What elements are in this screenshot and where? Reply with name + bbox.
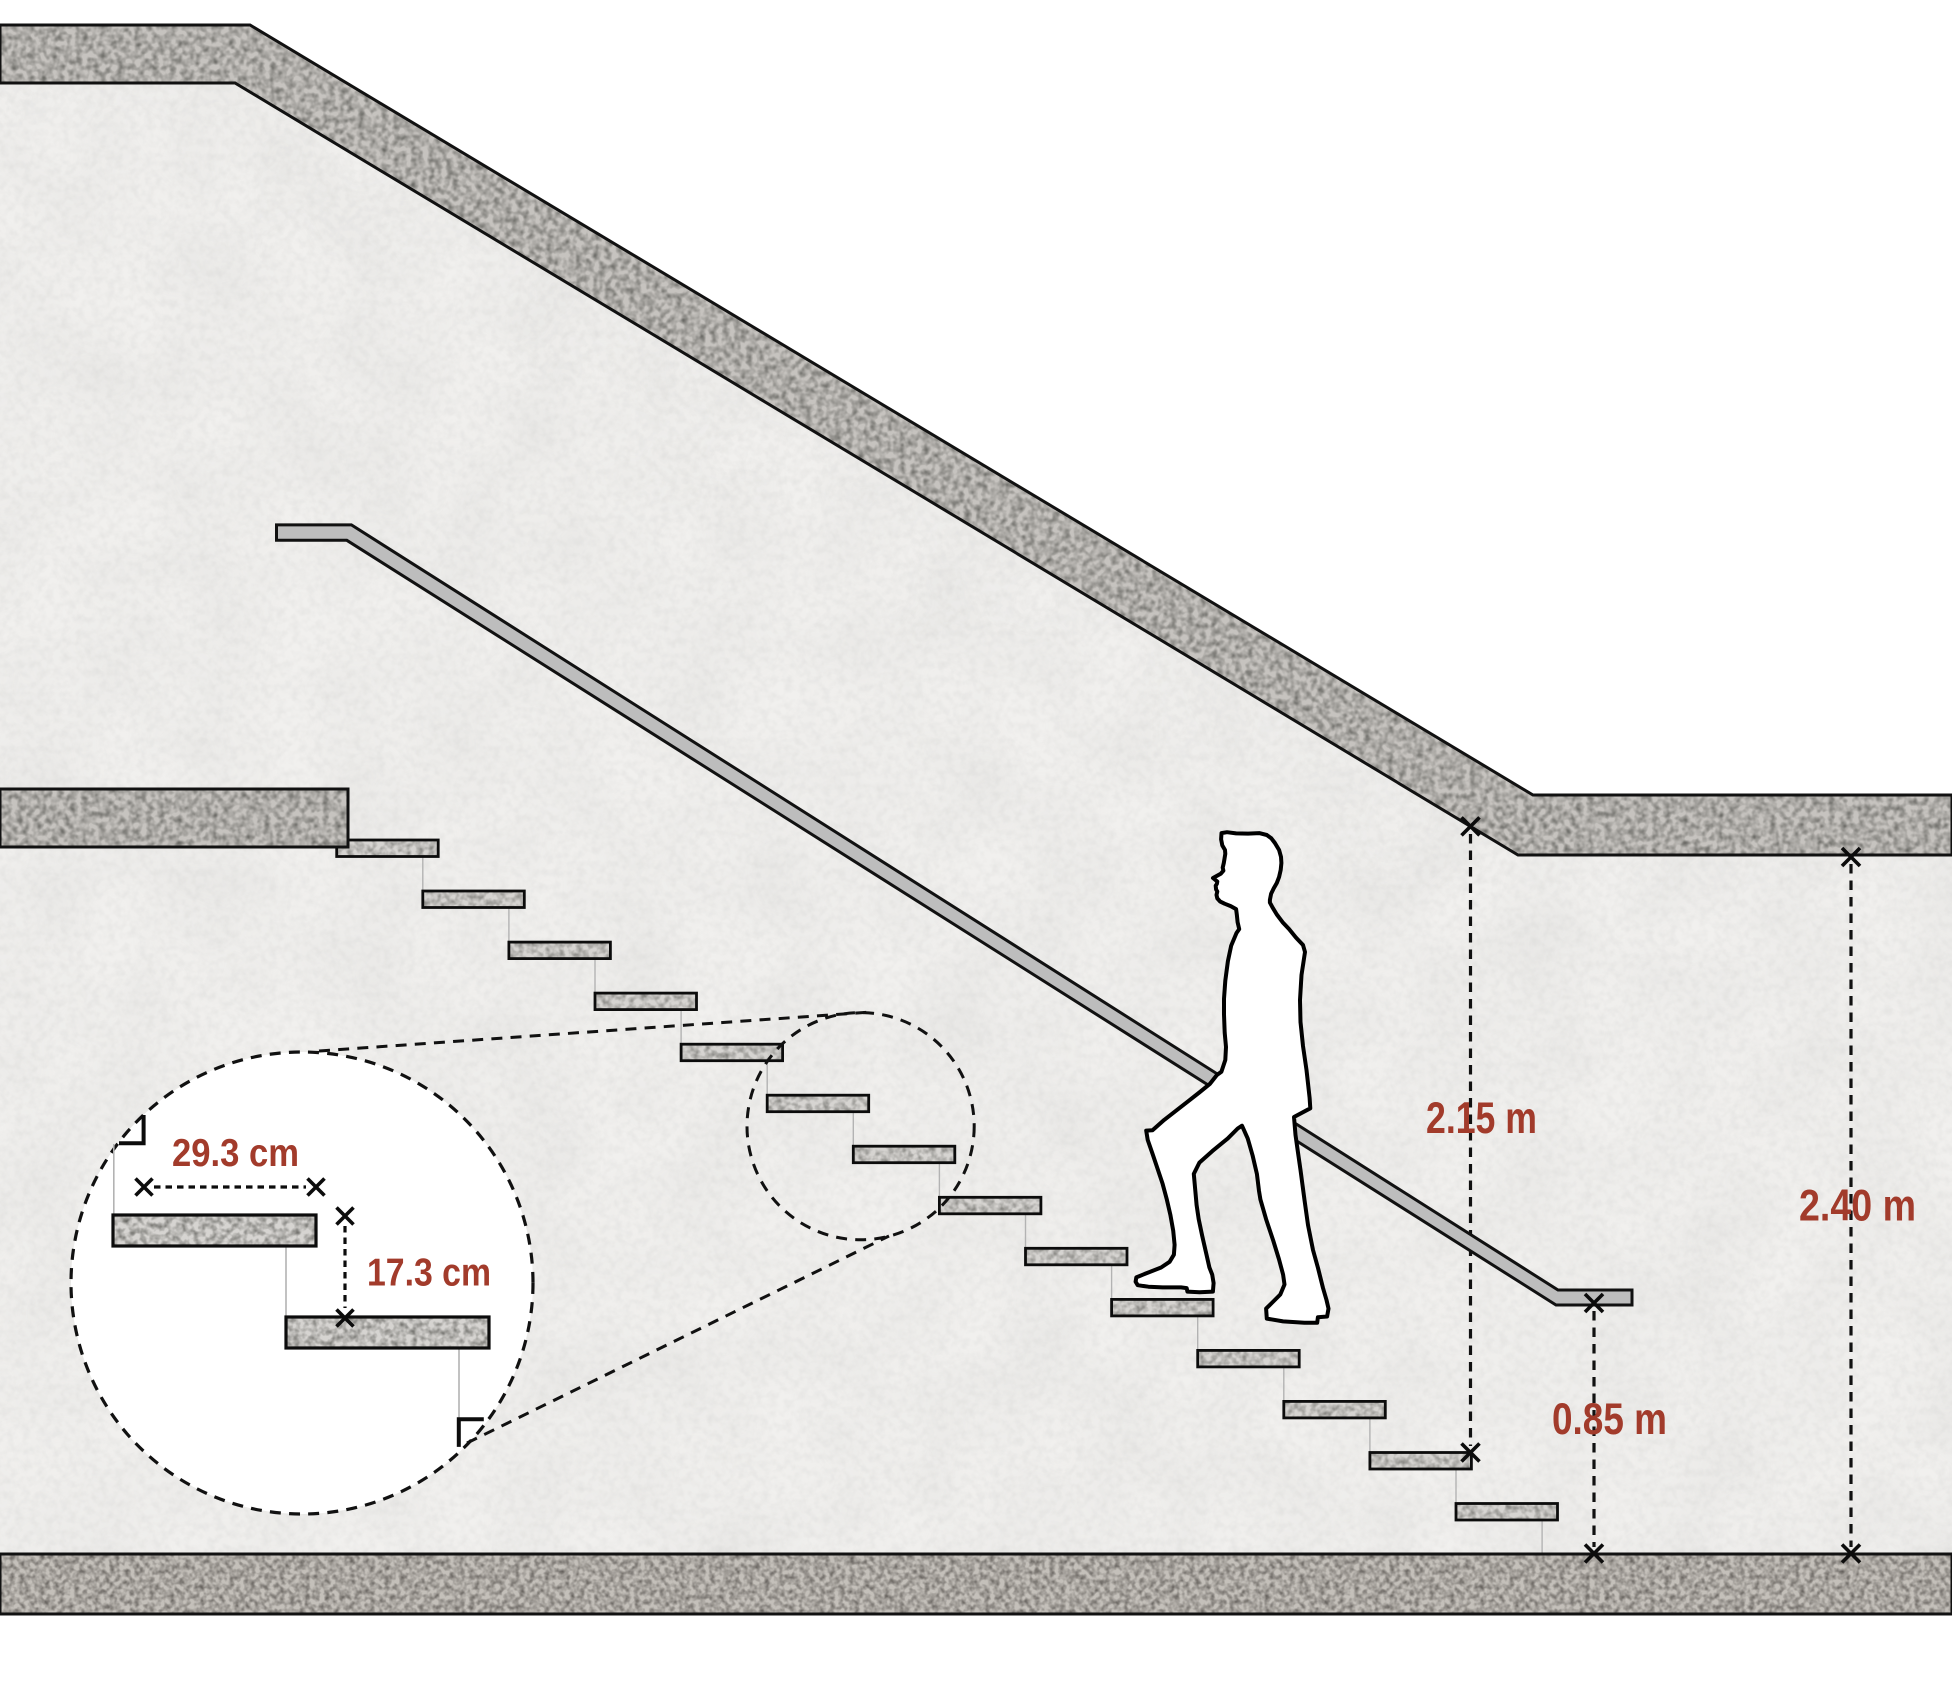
svg-text:0.85 m: 0.85 m xyxy=(1552,1395,1667,1444)
svg-text:29.3 cm: 29.3 cm xyxy=(172,1132,299,1175)
svg-text:2.15 m: 2.15 m xyxy=(1426,1094,1537,1143)
svg-text:17.3 cm: 17.3 cm xyxy=(367,1252,491,1295)
svg-text:2.40 m: 2.40 m xyxy=(1799,1182,1916,1231)
